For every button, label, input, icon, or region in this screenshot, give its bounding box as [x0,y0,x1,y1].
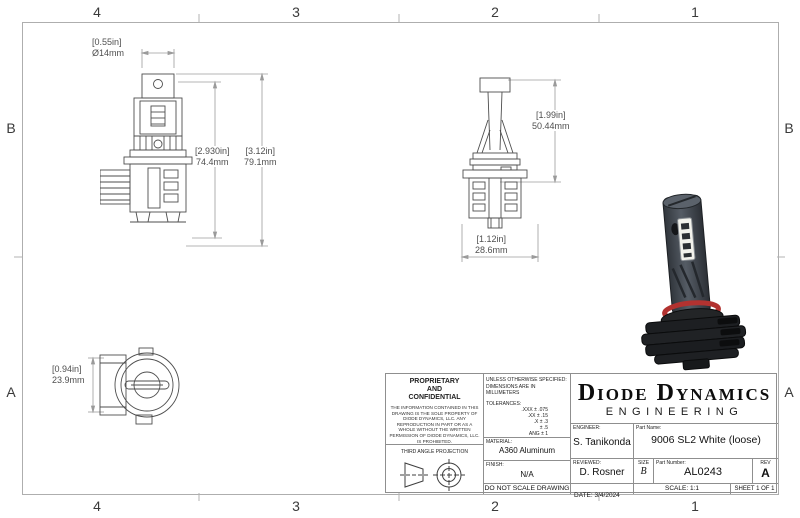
engineer-cell: ENGINEER: S. Tanikonda [571,424,634,459]
proprietary-heading-3: CONFIDENTIAL [386,394,483,402]
company-logo: Diode Dynamics ENGINEERING [571,374,778,424]
part-name-label: Part Name: [634,424,778,431]
material-value: A360 Aluminum [484,446,570,455]
sheet-text: SHEET 1 OF 1 [731,484,778,494]
part-name-value: 9006 SL2 White (loose) [634,434,778,446]
rev-cell: REV A [753,459,778,484]
bottom-view-drawing [95,345,190,430]
spec-note-2: DIMENSIONS ARE IN MILLIMETERS [484,384,570,397]
size-value: B [634,466,653,477]
date-value: 3/4/2024 [594,492,619,499]
proprietary-body: THE INFORMATION CONTAINED IN THIS DRAWIN… [386,405,483,444]
dim-cap-diameter-in: [0.55in] [92,37,124,48]
dim-body-height: [2.930in] 74.4mm [194,146,231,167]
dim-upper-height: [1.99in] 50.44mm [531,110,571,131]
dim-upper-height-mm: 50.44mm [532,121,570,132]
date-label: DATE: [574,492,593,499]
reviewed-value: D. Rosner [571,467,633,478]
side-view-drawing [455,75,565,235]
title-block: PROPRIETARY AND CONFIDENTIAL THE INFORMA… [385,373,777,493]
size-label: SIZE [634,459,653,466]
proprietary-heading-1: PROPRIETARY [386,378,483,386]
proprietary-notice: PROPRIETARY AND CONFIDENTIAL THE INFORMA… [386,374,484,445]
size-cell: SIZE B [634,459,654,484]
part-name-cell: Part Name: 9006 SL2 White (loose) [634,424,778,459]
date-cell: DATE: 3/4/2024 [571,484,634,494]
dim-overall-height: [3.12in] 79.1mm [243,146,278,167]
rev-label: REV [753,459,778,466]
company-name: Diode Dynamics [571,380,778,407]
tolerance-angle: ANG ± 1 [502,431,548,437]
scale-text: SCALE: 1:1 [634,484,730,494]
scale-cell: SCALE: 1:1 [634,484,731,494]
drawing-sheet: 4 3 2 1 4 3 2 1 B A B A [0,0,800,518]
do-not-scale-text: DO NOT SCALE DRAWING [484,484,570,494]
part-number-value: AL0243 [654,466,752,478]
dim-base-depth-mm: 23.9mm [52,375,85,386]
material-cell: MATERIAL: A360 Aluminum [484,438,571,461]
material-label: MATERIAL: [484,438,570,445]
part-number-label: Part Number: [654,459,752,466]
product-photo [620,187,760,377]
reviewed-cell: REVIEWED: D. Rosner [571,459,634,484]
dim-overall-height-in: [3.12in] [244,146,277,157]
spec-note-1: UNLESS OTHERWISE SPECIFIED: [484,377,570,384]
dim-upper-height-in: [1.99in] [532,110,570,121]
rev-value: A [753,466,778,480]
dim-base-width: [1.12in] 28.6mm [474,234,509,255]
projection-label: THIRD ANGLE PROJECTION [386,449,483,455]
third-angle-projection-icon [399,458,471,492]
do-not-scale-cell: DO NOT SCALE DRAWING [484,484,571,494]
part-number-cell: Part Number: AL0243 [654,459,753,484]
engineer-label: ENGINEER: [571,424,633,431]
company-subtitle: ENGINEERING [571,406,778,418]
finish-value: N/A [484,470,570,479]
dim-base-width-mm: 28.6mm [475,245,508,256]
sheet-cell: SHEET 1 OF 1 [731,484,778,494]
dim-base-depth-in: [0.94in] [52,364,85,375]
dim-body-height-mm: 74.4mm [195,157,230,168]
dim-cap-diameter: [0.55in] Ø14mm [91,37,125,58]
finish-label: FINISH: [484,461,570,468]
proprietary-heading-2: AND [386,386,483,394]
dim-base-depth: [0.94in] 23.9mm [51,364,86,385]
reviewed-label: REVIEWED: [571,459,633,466]
tolerances-block: UNLESS OTHERWISE SPECIFIED: DIMENSIONS A… [484,374,571,438]
engineer-value: S. Tanikonda [571,437,633,448]
dim-body-height-in: [2.930in] [195,146,230,157]
finish-cell: FINISH: N/A [484,461,571,484]
dim-cap-diameter-mm: Ø14mm [92,48,124,59]
dim-base-width-in: [1.12in] [475,234,508,245]
third-angle-projection: THIRD ANGLE PROJECTION [386,445,484,494]
dim-overall-height-mm: 79.1mm [244,157,277,168]
